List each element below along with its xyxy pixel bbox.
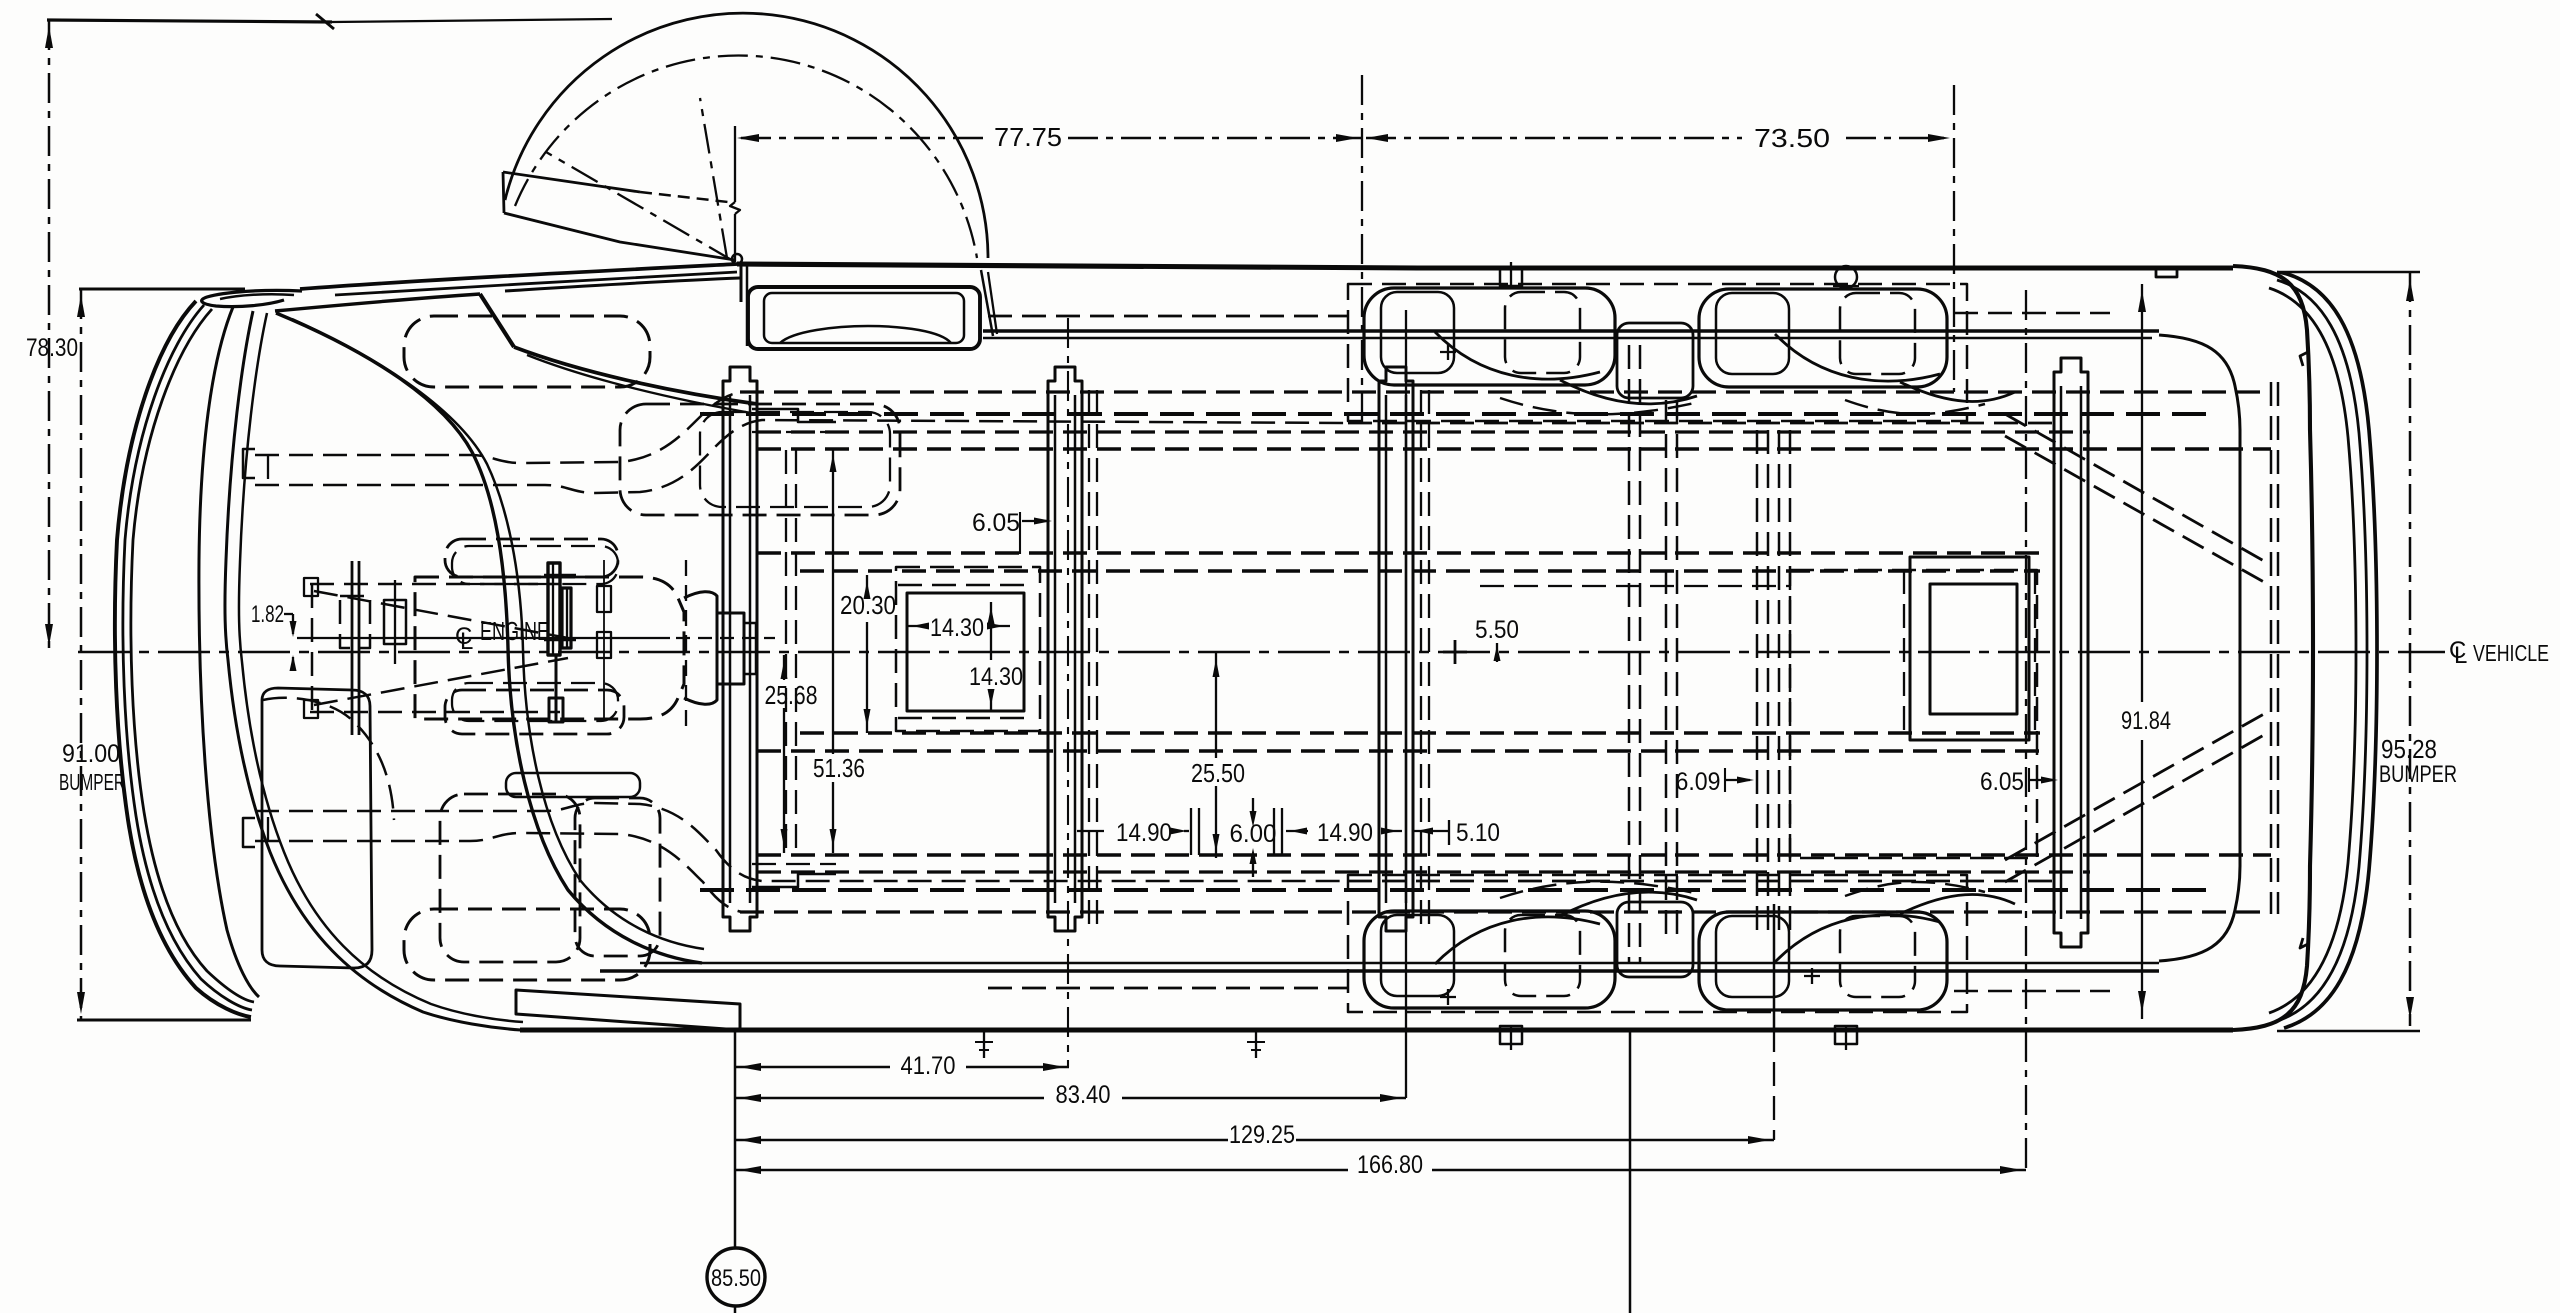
svg-text:85.50: 85.50 bbox=[711, 1265, 761, 1292]
svg-text:25.68: 25.68 bbox=[765, 680, 818, 710]
svg-text:5.50: 5.50 bbox=[1475, 616, 1519, 644]
svg-text:5.10: 5.10 bbox=[1456, 819, 1500, 847]
svg-text:83.40: 83.40 bbox=[1056, 1081, 1111, 1109]
svg-text:91.84: 91.84 bbox=[2121, 707, 2171, 735]
svg-text:166.80: 166.80 bbox=[1357, 1151, 1423, 1179]
svg-text:77.75: 77.75 bbox=[994, 122, 1062, 152]
svg-text:14.90: 14.90 bbox=[1317, 819, 1373, 847]
svg-text:91.00: 91.00 bbox=[62, 740, 120, 768]
svg-text:41.70: 41.70 bbox=[901, 1052, 956, 1080]
svg-text:6.09: 6.09 bbox=[1676, 768, 1721, 796]
svg-text:L: L bbox=[460, 628, 473, 655]
svg-text:14.30: 14.30 bbox=[969, 663, 1023, 691]
svg-text:L: L bbox=[2454, 642, 2467, 669]
svg-text:95.28: 95.28 bbox=[2381, 734, 2437, 764]
svg-text:BUMPER: BUMPER bbox=[59, 769, 125, 795]
svg-text:BUMPER: BUMPER bbox=[2379, 761, 2457, 788]
svg-text:ENGINE: ENGINE bbox=[480, 616, 549, 646]
svg-text:14.90: 14.90 bbox=[1116, 819, 1172, 847]
svg-text:51.36: 51.36 bbox=[813, 753, 865, 783]
svg-text:VEHICLE: VEHICLE bbox=[2473, 640, 2549, 666]
svg-text:14.30: 14.30 bbox=[930, 614, 984, 642]
svg-text:73.50: 73.50 bbox=[1754, 123, 1830, 153]
svg-text:25.50: 25.50 bbox=[1191, 758, 1245, 788]
svg-text:129.25: 129.25 bbox=[1229, 1121, 1295, 1149]
svg-text:6.05: 6.05 bbox=[1980, 768, 2024, 796]
svg-text:78.30: 78.30 bbox=[26, 334, 78, 362]
svg-text:1.82: 1.82 bbox=[251, 601, 284, 628]
svg-text:6.05: 6.05 bbox=[972, 509, 1020, 537]
